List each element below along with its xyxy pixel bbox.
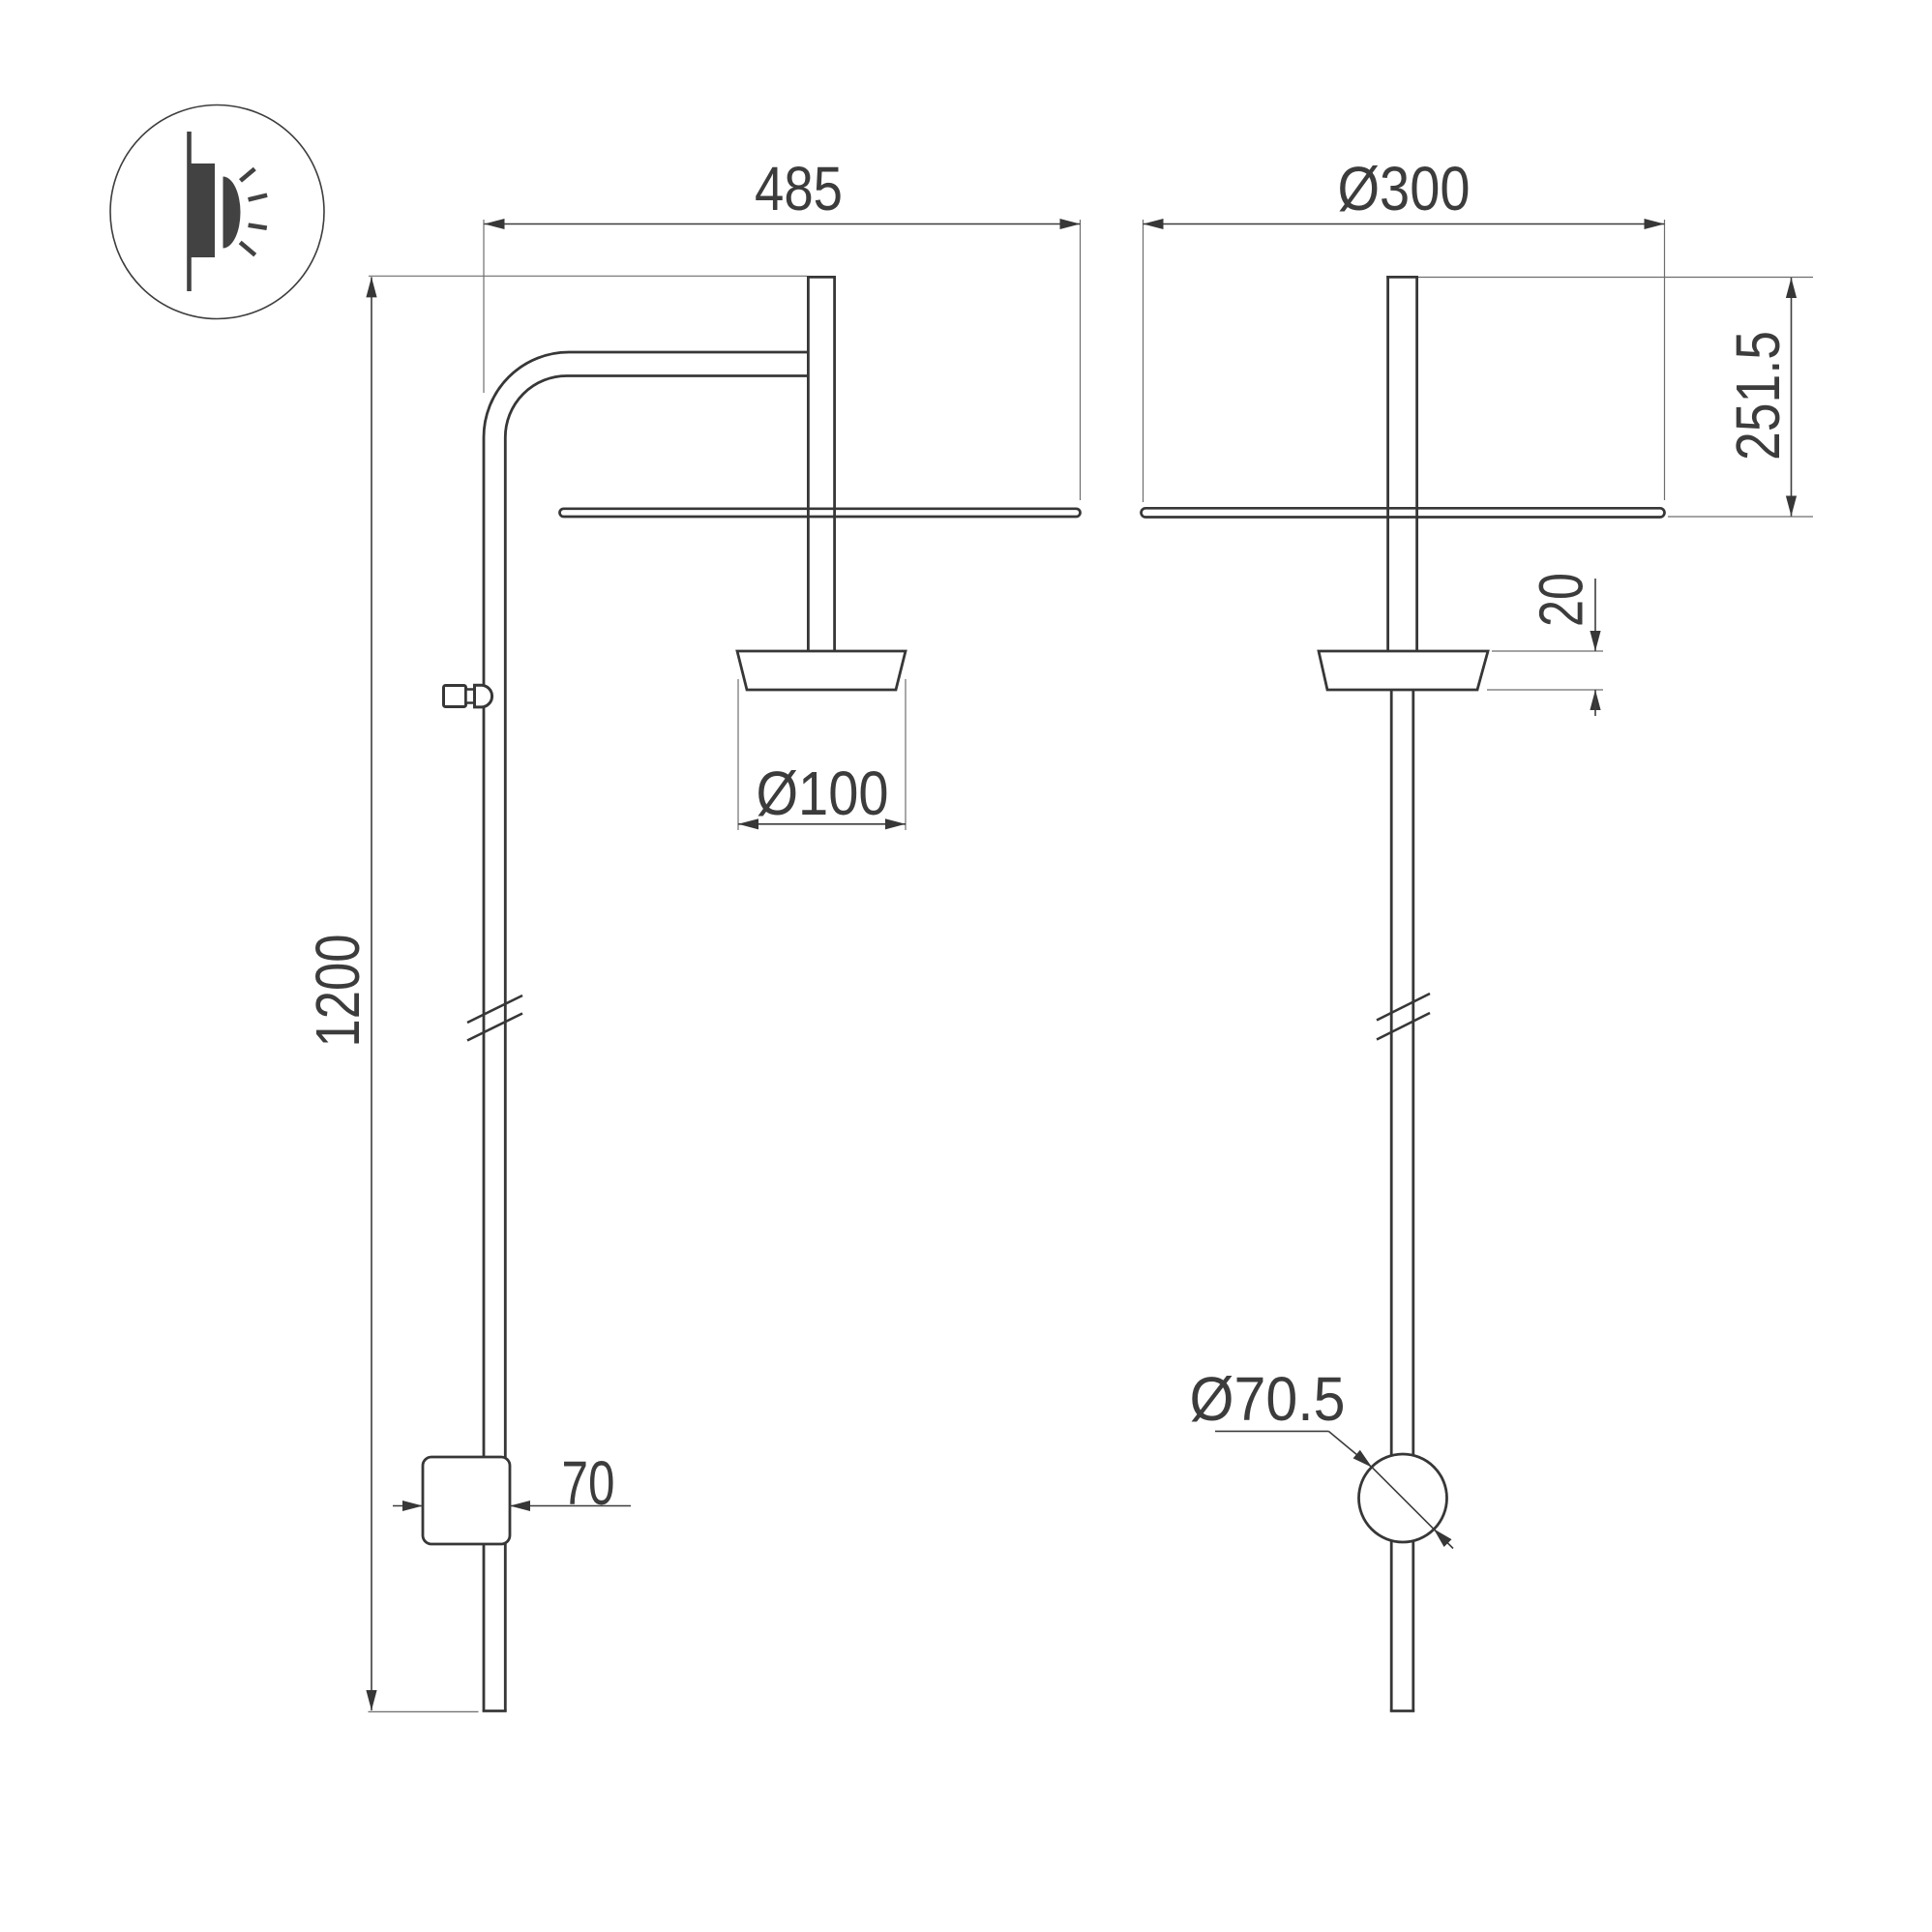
svg-text:70: 70 (562, 1448, 615, 1518)
svg-text:20: 20 (1527, 573, 1596, 627)
svg-text:1200: 1200 (303, 935, 372, 1048)
svg-text:485: 485 (755, 154, 843, 223)
svg-text:Ø100: Ø100 (757, 758, 889, 828)
svg-text:251.5: 251.5 (1723, 331, 1793, 461)
svg-text:Ø300: Ø300 (1338, 154, 1471, 223)
svg-text:Ø70.5: Ø70.5 (1190, 1364, 1346, 1434)
